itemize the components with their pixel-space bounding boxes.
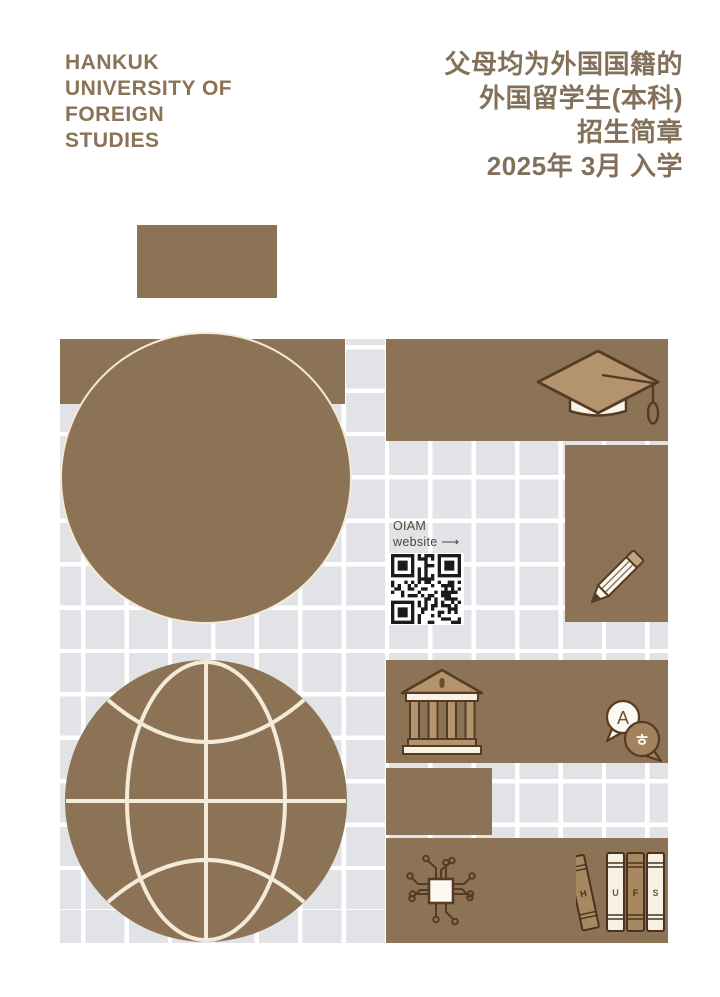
accent-block	[386, 768, 492, 835]
book-spine-letter: F	[633, 888, 639, 898]
qr-label-line2: website ⟶	[393, 534, 459, 550]
logo-line: UNIVERSITY OF	[65, 76, 232, 102]
globe-icon	[64, 659, 348, 943]
qr-code	[388, 553, 464, 625]
logo-line: STUDIES	[65, 128, 232, 154]
books-icon: H U F	[576, 849, 668, 937]
hero-circle	[60, 332, 352, 624]
tech-block: H U F	[386, 838, 668, 943]
logo-line: FOREIGN	[65, 102, 232, 128]
title-line: 外国留学生(本科)	[444, 81, 683, 115]
logo-line: HANKUK	[65, 50, 232, 76]
poster-page: HANKUK UNIVERSITY OF FOREIGN STUDIES 父母均…	[0, 0, 720, 997]
pencil-icon	[579, 541, 653, 615]
university-logo: HANKUK UNIVERSITY OF FOREIGN STUDIES	[65, 50, 232, 154]
graduation-block	[386, 339, 668, 441]
translation-icon: A ㅎ	[602, 698, 668, 764]
graduation-cap-icon	[532, 345, 664, 441]
book-spine-letter: S	[652, 888, 658, 898]
admissions-title: 父母均为外国国籍的 外国留学生(本科) 招生简章 2025年 3月 入学	[444, 47, 683, 183]
qr-label: OIAM website ⟶	[393, 518, 459, 550]
brown-rectangle	[137, 225, 277, 298]
korean-char: ㅎ	[634, 731, 650, 750]
university-building-icon	[398, 666, 486, 758]
title-line: 招生简章	[444, 115, 683, 149]
campus-block: A ㅎ	[386, 660, 668, 763]
circuit-chip-icon	[398, 846, 484, 936]
grid-composition: OIAM website ⟶ A	[60, 339, 668, 943]
qr-label-line1: OIAM	[393, 518, 459, 534]
latin-char: A	[617, 708, 629, 728]
book-spine-letter: U	[612, 888, 619, 898]
pencil-block	[565, 445, 668, 622]
title-line: 2025年 3月 入学	[444, 149, 683, 183]
title-line: 父母均为外国国籍的	[444, 47, 683, 81]
